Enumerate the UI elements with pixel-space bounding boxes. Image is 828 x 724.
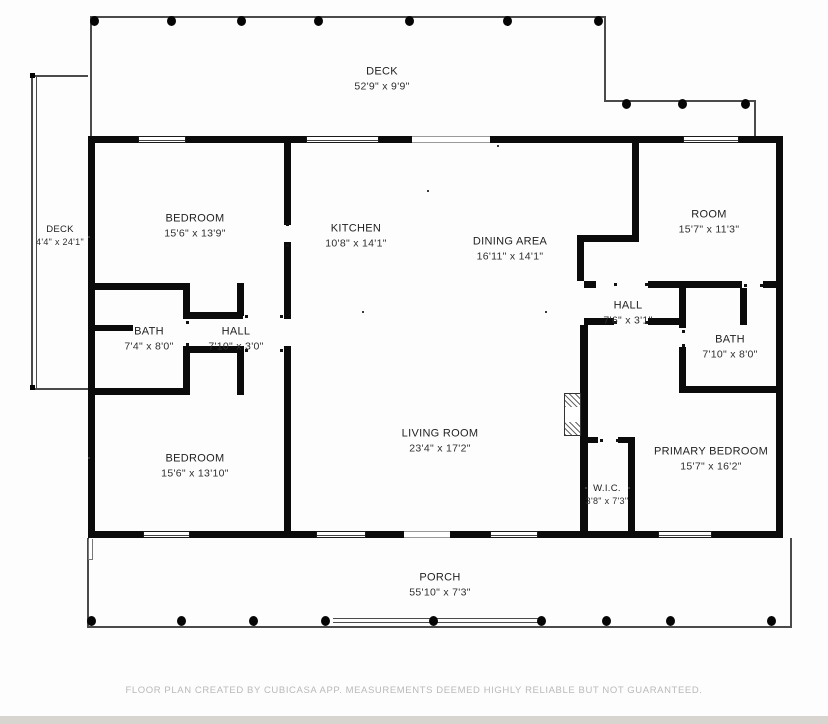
window [143,531,190,538]
deck-post [314,16,323,26]
room-dimensions: 55'10" x 7'3" [409,586,471,600]
room-name: BATH [702,333,757,348]
door-jamb-dot [614,283,617,286]
measure-dot [88,236,90,238]
door-opening [412,136,490,143]
wall [588,437,598,443]
door-jamb-dot [645,283,648,286]
deck-post [405,16,414,26]
door-jamb-dot [616,439,619,442]
room-dimensions: 7'4" x 8'0" [124,340,173,354]
room-label-bath: BATH7'10" x 8'0" [702,333,757,362]
room-name: HALL [603,299,652,314]
deck-post [237,16,246,26]
window [306,136,379,143]
room-label-bath: BATH7'4" x 8'0" [124,325,173,354]
room-name: BATH [124,325,173,340]
door-jamb-dot [744,284,747,287]
door-jamb-dot [186,321,189,324]
wall [632,143,639,235]
room-label-kitchen: KITCHEN10'8" x 14'1" [325,222,387,251]
room-dimensions: 7'10" x 3'0" [208,340,263,354]
room-label-hall: HALL7'10" x 3'0" [208,325,263,354]
measure-dot [497,145,499,147]
window [658,531,712,538]
room-label-dining-area: DINING AREA16'11" x 14'1" [473,235,547,264]
wall [190,312,243,319]
door-opening [404,531,450,538]
window [138,136,186,143]
room-label-deck: DECK52'9" x 9'9" [354,65,409,94]
deck-post [503,16,512,26]
room-label-porch: PORCH55'10" x 7'3" [409,571,471,600]
room-dimensions: 4'4" x 24'1" [36,236,84,248]
wall [776,136,783,538]
measure-dot [545,311,547,313]
porch-post [537,616,546,626]
wall [88,283,190,290]
window [683,136,739,143]
door-jamb-dot [286,244,289,247]
room-name: BEDROOM [164,212,226,227]
room-dimensions: 16'11" x 14'1" [473,250,547,264]
wall [183,283,190,319]
room-label-deck: DECK4'4" x 24'1" [36,224,84,248]
porch-post [249,616,258,626]
room-name: W.I.C. [586,483,629,495]
porch-post [321,616,330,626]
wall [577,235,639,242]
door-jamb-dot [280,349,283,352]
deck-post [90,16,99,26]
porch-post [666,616,675,626]
room-dimensions: 7'10" x 8'0" [702,348,757,362]
porch-outline [790,538,792,628]
room-dimensions: 3'8" x 7'3" [586,495,629,507]
room-dimensions: 23'4" x 17'2" [402,442,479,456]
room-name: DINING AREA [473,235,547,250]
measure-dot [427,190,429,192]
room-name: DECK [354,65,409,80]
wall [88,136,95,538]
room-label-w-i-c-: W.I.C.3'8" x 7'3" [586,483,629,507]
room-name: ROOM [679,208,740,223]
room-dimensions: 15'6" x 13'10" [161,467,229,481]
room-dimensions: 15'7" x 11'3" [679,223,740,237]
wall [284,242,291,319]
room-name: PRIMARY BEDROOM [654,445,768,460]
deck-post [30,385,35,390]
porch-post [767,616,776,626]
wall [577,242,584,281]
wall [284,143,291,225]
measure-dot [362,311,364,313]
room-name: KITCHEN [325,222,387,237]
deck-post [594,16,603,26]
room-name: HALL [208,325,263,340]
measure-dot [88,457,90,459]
wall [648,281,742,288]
door-jamb-dot [245,315,248,318]
window [490,531,538,538]
window [316,531,366,538]
door-jamb-dot [186,343,189,346]
disclaimer-text: FLOOR PLAN CREATED BY CUBICASA APP. MEAS… [0,685,828,696]
deck-outline [754,100,756,137]
porch-post [87,616,96,626]
deck-outline [31,388,88,390]
porch-post [602,616,611,626]
wall [584,281,596,288]
deck-outline [604,16,606,102]
wall [237,283,244,316]
porch-outline [87,626,792,628]
door-jamb-dot [280,315,283,318]
door-jamb-dot [286,223,289,226]
room-label-living-room: LIVING ROOM23'4" x 17'2" [402,427,479,456]
deck-outline [31,75,88,77]
door-jamb-dot [760,284,763,287]
porch-railing [333,618,543,619]
wall [284,346,291,531]
wall [763,281,776,288]
deck-outline [31,75,33,390]
door-jamb-dot [682,344,685,347]
photo-strip-edge [0,716,828,724]
porch-step [88,539,93,560]
porch-post [429,616,438,626]
deck-post [30,73,35,78]
room-label-primary-bedroom: PRIMARY BEDROOM15'7" x 16'2" [654,445,768,474]
floorplan-image: DECK52'9" x 9'9"DECK4'4" x 24'1"BEDROOM1… [0,0,828,724]
wall [679,386,776,393]
room-dimensions: 10'8" x 14'1" [325,237,387,251]
wall [740,288,747,325]
wall [679,281,686,328]
room-name: PORCH [409,571,471,586]
deck-outline [90,16,92,137]
room-dimensions: 7'6" x 3'1" [603,314,652,328]
room-label-bedroom: BEDROOM15'6" x 13'10" [161,452,229,481]
room-label-room: ROOM15'7" x 11'3" [679,208,740,237]
room-label-hall: HALL7'6" x 3'1" [603,299,652,328]
room-dimensions: 52'9" x 9'9" [354,80,409,94]
wall [88,388,190,395]
room-name: DECK [36,224,84,236]
door-jamb-dot [600,439,603,442]
porch-post [177,616,186,626]
porch-railing [333,622,543,623]
deck-post [741,99,750,109]
fireplace-icon [564,393,581,436]
deck-post [167,16,176,26]
deck-post [678,99,687,109]
door-jamb-dot [682,330,685,333]
room-dimensions: 15'6" x 13'9" [164,227,226,241]
room-label-bedroom: BEDROOM15'6" x 13'9" [164,212,226,241]
deck-post [622,99,631,109]
room-dimensions: 15'7" x 16'2" [654,460,768,474]
room-name: BEDROOM [161,452,229,467]
room-name: LIVING ROOM [402,427,479,442]
